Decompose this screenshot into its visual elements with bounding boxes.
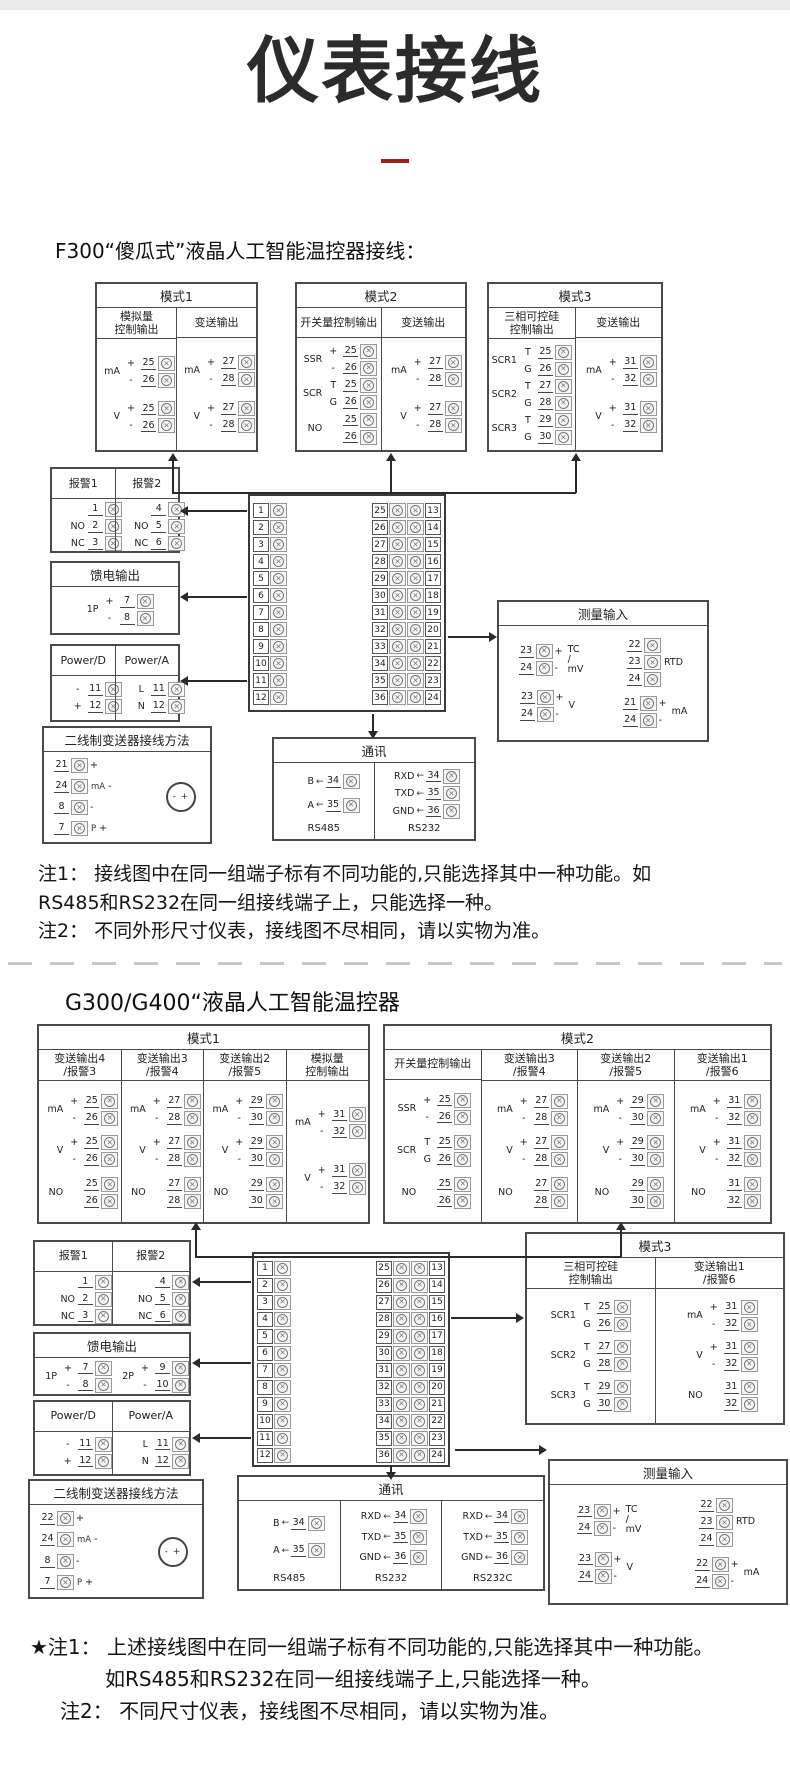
screw-cross-icon [98,1380,109,1391]
screw-cross-icon [392,573,403,584]
screw-cross-icon [60,1556,71,1567]
terminal-screw-icon [411,1312,428,1327]
terminal-pin: 26 [376,1278,392,1293]
terminal-screw-icon [407,588,424,603]
terminal-screw-icon [407,690,424,705]
terminal-screw-icon [71,821,88,836]
terminal-sign: - [123,420,139,431]
terminal: 4 [137,1275,189,1290]
terminal-pin: 26 [84,1153,99,1166]
terminal-screw-icon [393,1278,410,1293]
terminal: +29 [612,1094,664,1109]
terminal-pin: 32 [332,1181,347,1194]
terminal: A←35 [254,1543,326,1558]
terminal-sign: + [709,1137,725,1148]
terminal: +27 [410,401,462,416]
terminal: NC3 [60,1309,112,1324]
terminal-sign: - [516,1113,532,1124]
terminal-pin: 32 [724,1358,739,1371]
screw-cross-icon [719,1517,730,1528]
terminal: GND←36 [457,1550,529,1565]
screw-cross-icon [554,1179,565,1190]
screw-cross-icon [187,1196,198,1207]
terminal-sign: T [325,380,341,391]
g300-measure-box: 测量输入23+24-TC / mV23+24-V222324RTD22+24-m… [548,1459,788,1605]
terminal: +31 [709,1135,761,1150]
screw-cross-icon [396,1382,407,1393]
screw-cross-icon [410,556,421,567]
terminal: 7P+ [54,821,109,836]
terminal-pin: 34 [376,1414,392,1429]
terminal-group: SCR3T29G30 [492,413,572,445]
terminal: -32 [314,1124,366,1139]
terminal-sign: G [520,364,536,375]
group-label: mA [684,1105,706,1115]
group-label: mA [681,1311,703,1321]
arrow-left-icon: ← [316,777,324,787]
terminal-pin: 24 [699,1533,714,1546]
screw-cross-icon [414,1433,425,1444]
terminal-screw-icon [349,1180,366,1195]
screw-cross-icon [60,1534,71,1545]
terminal: -26 [123,373,175,388]
terminal-screw-icon [551,1094,568,1109]
terminal-screw-icon [407,520,424,535]
arrowhead-icon [616,1222,626,1230]
terminal: -32 [706,1317,758,1332]
screw-cross-icon [392,692,403,703]
f300-strip-box: 1234567891011122513261427152816291730183… [248,494,446,712]
terminal-group: NO2728 [491,1177,568,1209]
terminal-sign: G [419,1154,435,1165]
screw-cross-icon [558,347,569,358]
screw-cross-icon [187,1154,198,1165]
terminal-screw-icon [454,1194,471,1209]
screw-cross-icon [514,1552,525,1563]
terminal-pin: 6 [257,1346,273,1361]
terminal-pin: 33 [372,639,388,654]
screw-cross-icon [747,1113,758,1124]
terminal: NC6 [133,536,185,551]
terminal-pin: 26 [141,420,156,433]
terminal-pin: 32 [727,1195,742,1208]
arrowhead-icon [192,1358,200,1368]
terminal: 24 [627,672,661,687]
screw-cross-icon [396,1331,407,1342]
screw-cross-icon [598,1571,609,1582]
terminal-screw-icon [411,1261,428,1276]
terminal-group: mA+25-26 [41,1094,118,1126]
terminal: 3523 [372,673,441,688]
terminal-screw-icon [266,1135,283,1150]
screw-cross-icon [273,556,284,567]
terminal: -30 [612,1152,664,1167]
screw-cross-icon [414,1331,425,1342]
terminal-screw-icon [343,774,360,789]
terminal-sign: TXD [355,1532,381,1543]
terminal: 31 [706,1380,758,1395]
group-label: NO [394,1188,416,1198]
terminal-screw-icon [511,1530,528,1545]
terminal-sign: + [85,1577,95,1588]
terminal-screw-icon [454,1110,471,1125]
connector-wire [455,1449,540,1451]
terminal: 3 [253,537,287,552]
screw-cross-icon [98,1277,109,1288]
terminal: GND←36 [355,1550,427,1565]
terminal: +27 [516,1094,568,1109]
terminal-pin: 4 [151,503,166,516]
terminal-pin: 25 [597,1301,612,1314]
box-title: 二线制变送器接线方法 [30,1481,202,1505]
box-column: 变送输出4 /报警3mA+25-26V+25-26NO2526 [39,1050,121,1222]
terminal-screw-icon [644,655,661,670]
box-column: 三相可控硅 控制输出SCR1T25G26SCR2T27G28SCR3T29G30 [527,1258,655,1423]
terminal-pin: 11 [88,683,103,696]
terminal-screw-icon [274,1431,291,1446]
terminal: +31 [314,1163,366,1178]
terminal-sign: + [76,1513,86,1524]
terminal-screw-icon [349,1107,366,1122]
terminal: +25 [419,1093,471,1108]
terminal-pin: 27 [376,1295,392,1310]
terminal-pin: 25 [343,345,358,358]
terminal-screw-icon [184,1135,201,1150]
terminal: 3321 [372,639,441,654]
terminal: 3624 [376,1448,445,1463]
terminal: 11 [253,673,287,688]
screw-cross-icon [104,1196,115,1207]
terminal: 2715 [372,537,441,552]
terminal-sign: - [94,1534,104,1545]
terminal: 3523 [376,1431,445,1446]
terminal: NC6 [137,1309,189,1324]
column-header: 变送输出 [382,308,466,338]
screw-cross-icon [457,1137,468,1148]
terminal: 26 [325,430,377,445]
terminal-screw-icon [172,1292,189,1307]
screw-cross-icon [273,522,284,533]
terminal: 4 [133,502,185,517]
group-label: NO [491,1188,513,1198]
terminal-screw-icon [744,1194,761,1209]
terminal-pin: 23 [429,1431,445,1446]
terminal: N12 [133,699,185,714]
terminal: 22+ [695,1557,741,1572]
terminal: 25 [419,1177,471,1192]
screw-cross-icon [410,641,421,652]
top-bar [0,0,790,10]
terminal-sign: - [605,420,621,431]
terminal: A←35 [288,798,360,813]
terminal-group: SCRT25G26 [394,1135,471,1167]
terminal: 12 [253,690,287,705]
terminal-pin: 7 [78,1362,93,1375]
terminal-pin: 5 [257,1329,273,1344]
screw-cross-icon [241,374,252,385]
terminal-screw-icon [647,1111,664,1126]
terminal-sign: + [612,1137,628,1148]
terminal-pin: 1 [78,1276,93,1289]
transmitter-icon: - + [166,782,196,812]
terminal-sign: - [60,1439,76,1450]
terminal-pin: 24 [425,690,441,705]
terminal-pin: 5 [253,571,269,586]
terminal: TXD←35 [457,1530,529,1545]
terminal-pin: 30 [376,1346,392,1361]
group-label: SSR [394,1104,416,1114]
terminal-pin: 32 [332,1126,347,1139]
box-title: 模式2 [297,284,465,308]
terminal-screw-icon [57,1511,74,1526]
terminal-screw-icon [647,1194,664,1209]
terminal-pin: 27 [221,356,236,369]
terminal: +7 [60,1361,112,1376]
screw-cross-icon [277,1450,288,1461]
arrowhead-icon [489,632,497,642]
terminal-pin: 25 [141,403,156,416]
screw-cross-icon [410,675,421,686]
terminal-pin: 34 [426,770,441,783]
terminal-pin: 23 [699,1516,714,1529]
terminal-sign: B [254,1518,280,1529]
g300-mode1-box: 模式1变送输出4 /报警3mA+25-26V+25-26NO2526变送输出3 … [37,1024,370,1224]
terminal-pin: 29 [538,414,553,427]
terminal-sign: - [76,1556,86,1567]
terminal-pin: 34 [494,1510,509,1523]
screw-cross-icon [273,692,284,703]
terminal-sign: T [520,415,536,426]
screw-cross-icon [74,760,85,771]
terminal: 3 [257,1295,291,1310]
screw-cross-icon [392,675,403,686]
box-column: 变送输出1 /报警6mA+31-32V+31-32NO3132 [674,1050,771,1222]
terminal-pin: 16 [425,554,441,569]
box-column: 2P+9-10 [112,1358,189,1394]
screw-cross-icon [363,415,374,426]
group-label: V [627,1563,641,1573]
terminal: 1 [60,1275,112,1290]
terminal: +27 [203,401,255,416]
column-header: 变送输出4 /报警3 [39,1050,121,1081]
terminal-pin: 7 [54,822,69,835]
terminal-sign: T [579,1342,595,1353]
terminal-screw-icon [744,1152,761,1167]
terminal: -26 [66,1111,118,1126]
terminal-pin: 12 [78,1455,93,1468]
box-column: 三相可控硅 控制输出SCR1T25G26SCR2T27G28SCR3T29G30 [489,308,575,450]
arrow-left-icon: ← [485,1512,493,1522]
terminal: 2513 [372,503,441,518]
terminal: 8 [257,1380,291,1395]
terminal: 23 [699,1515,733,1530]
terminal: +9 [137,1361,189,1376]
group-label: mA [178,366,200,376]
terminal-screw-icon [172,1361,189,1376]
terminal-pin: 8 [120,612,135,625]
terminal-pin: 22 [699,1499,714,1512]
terminal-screw-icon [551,1177,568,1192]
screw-cross-icon [104,1154,115,1165]
group-label: V [289,1174,311,1184]
terminal-pin: 35 [326,799,341,812]
terminal-sign: + [555,646,565,657]
terminal-pin: 31 [727,1095,742,1108]
terminal: 24- [577,1521,623,1536]
terminal-screw-icon [137,594,154,609]
column-header: 变送输出1 /报警6 [675,1050,771,1081]
terminal-pin: 35 [426,787,441,800]
terminal: +12 [60,1454,112,1469]
screw-cross-icon [719,1500,730,1511]
terminal-pin: 26 [84,1195,99,1208]
terminal-pin: 35 [393,1531,408,1544]
terminal: 25 [325,413,377,428]
terminal-screw-icon [445,401,462,416]
column-header: Power/D [52,646,115,676]
terminal-pin: 25 [437,1178,452,1191]
screw-cross-icon [457,1154,468,1165]
box-column: 开关量控制输出SSR+25-26SCRT25G26NO2526 [385,1050,481,1222]
terminal-sign: TXD [457,1532,483,1543]
terminal: 6 [257,1346,291,1361]
terminal: 28 [149,1194,201,1209]
terminal-pin: 22 [627,639,642,652]
screw-cross-icon [650,1154,661,1165]
terminal-pin: 23 [520,691,535,704]
terminal: G26 [325,395,377,410]
terminal-screw-icon [57,1575,74,1590]
box-column: 报警11NO2NC3 [52,469,115,551]
screw-cross-icon [396,1348,407,1359]
terminal-pin: 3 [257,1295,273,1310]
terminal-pin: 27 [167,1095,182,1108]
arrow-left-icon: ← [282,1518,290,1528]
terminal-pin: 26 [372,520,388,535]
screw-cross-icon [392,624,403,635]
screw-cross-icon [171,521,182,532]
terminal-pin: 26 [597,1318,612,1331]
terminal-pin: 22 [425,656,441,671]
terminal-pin: 7 [257,1363,273,1378]
group-label: SCR [394,1146,416,1156]
terminal: -30 [231,1152,283,1167]
terminal-sign: T [419,1137,435,1148]
group-label: NO [587,1188,609,1198]
terminal-screw-icon [274,1346,291,1361]
terminal-pin: 28 [534,1195,549,1208]
terminal-pin: 21 [425,639,441,654]
terminal-group: V+31-32 [580,401,657,433]
screw-cross-icon [98,1311,109,1322]
terminal-screw-icon [168,699,185,714]
screw-cross-icon [744,1359,755,1370]
f300-power-box: Power/D-11+12Power/AL11N12 [50,644,180,722]
terminal-screw-icon [266,1094,283,1109]
connector-wire [172,492,576,494]
arrow-left-icon: ← [383,1512,391,1522]
terminal-sign: - [90,802,100,813]
terminal-pin: 36 [426,805,441,818]
connector-wire [187,510,247,512]
terminal-screw-icon [168,519,185,534]
terminal-screw-icon [445,355,462,370]
terminal-screw-icon [454,1152,471,1167]
terminal-screw-icon [411,1295,428,1310]
terminal-group: 23+24-V [520,690,583,722]
terminal: 23 [627,655,661,670]
terminal: NO5 [133,519,185,534]
terminal-screw-icon [270,537,287,552]
f300-mode1-box: 模式1模拟量 控制输出mA+25-26V+25-26变送输出mA+27-28V+… [95,282,258,452]
column-header: 变送输出2 /报警5 [578,1050,674,1081]
box-title: 通讯 [274,739,474,763]
terminal-pin: 34 [393,1510,408,1523]
terminal-screw-icon [158,401,175,416]
screw-cross-icon [457,1196,468,1207]
screw-cross-icon [448,403,459,414]
terminal-screw-icon [270,503,287,518]
terminal-group: V+27-28 [124,1135,201,1167]
terminal: N12 [137,1454,189,1469]
terminal-pin: 27 [534,1095,549,1108]
terminal: -28 [149,1111,201,1126]
group-label: TC / mV [568,645,584,675]
box-column: 开关量控制输出SSR+25-26SCRT25G26NO2526 [297,308,381,450]
terminal-pin: 29 [597,1381,612,1394]
box-column: 1P+7-8 [52,587,178,633]
terminal: -30 [612,1111,664,1126]
terminal-screw-icon [411,1380,428,1395]
terminal-screw-icon [274,1278,291,1293]
group-label: 1P [35,1372,57,1382]
group-label: NO [124,1188,146,1198]
terminal: 22+ [40,1511,86,1526]
terminal-screw-icon [443,786,460,801]
terminal-screw-icon [393,1414,410,1429]
terminal-pin: 12 [253,690,269,705]
screw-cross-icon [396,1280,407,1291]
terminal: -26 [123,418,175,433]
group-label: 1P [77,605,99,615]
comm-standard-label: RS485 [308,823,340,834]
screw-cross-icon [273,573,284,584]
terminal-sign: + [60,1363,76,1374]
terminal-sign: + [605,357,621,368]
transmitter-icon: - + [158,1537,188,1567]
connector-wire [172,460,174,493]
terminal-group: mA+29-30 [587,1094,664,1126]
terminal: T27 [520,379,572,394]
box-title: 模式1 [39,1026,368,1050]
terminal-sign: + [314,1165,330,1176]
screw-cross-icon [647,674,658,685]
terminal-group: mA+29-30 [206,1094,283,1126]
screw-cross-icon [187,1113,198,1124]
terminal-screw-icon [744,1094,761,1109]
arrow-left-icon: ← [416,771,424,781]
terminal-pin: 23 [425,673,441,688]
column-header: 变送输出 [177,308,256,338]
terminal-screw-icon [184,1094,201,1109]
terminal-group: NO2526 [394,1177,471,1209]
screw-cross-icon [396,1399,407,1410]
terminal-screw-icon [744,1135,761,1150]
terminal-pin: 17 [429,1329,445,1344]
screw-cross-icon [241,403,252,414]
screw-cross-icon [363,397,374,408]
terminal-pin: 11 [151,683,166,696]
